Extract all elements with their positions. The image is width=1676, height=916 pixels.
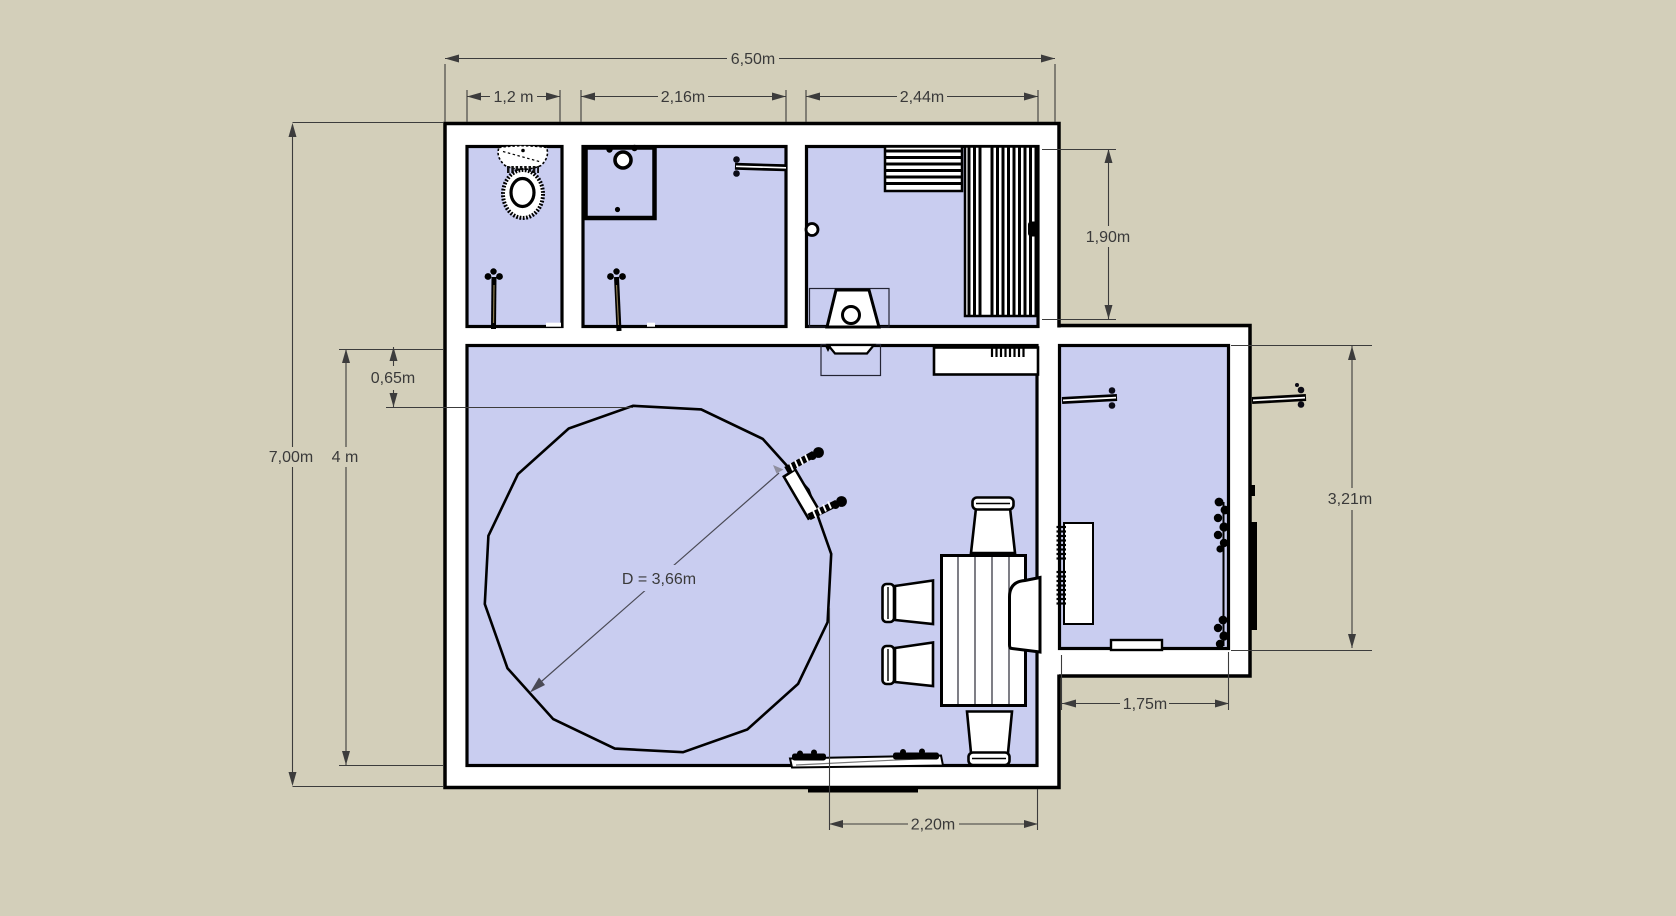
- svg-text:2,16m: 2,16m: [661, 89, 705, 106]
- svg-text:7,00m: 7,00m: [269, 449, 313, 466]
- svg-text:3,21m: 3,21m: [1328, 491, 1372, 508]
- svg-text:1,75m: 1,75m: [1123, 696, 1167, 713]
- svg-text:1,90m: 1,90m: [1086, 229, 1130, 246]
- svg-text:6,50m: 6,50m: [731, 51, 775, 68]
- svg-text:0,65m: 0,65m: [371, 370, 415, 387]
- svg-text:D = 3,66m: D = 3,66m: [622, 571, 696, 588]
- svg-text:2,20m: 2,20m: [911, 817, 955, 834]
- svg-text:4 m: 4 m: [332, 449, 359, 466]
- svg-text:2,44m: 2,44m: [900, 89, 944, 106]
- svg-text:1,2 m: 1,2 m: [493, 89, 533, 106]
